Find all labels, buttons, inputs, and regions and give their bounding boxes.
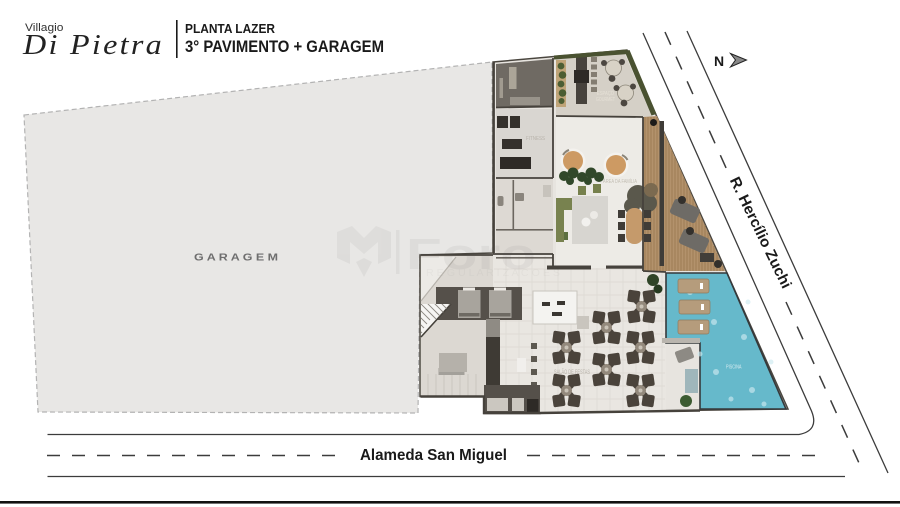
svg-text:Di Pietra: Di Pietra <box>22 30 164 61</box>
svg-text:FITNESS: FITNESS <box>526 136 546 142</box>
svg-text:Alameda San Miguel: Alameda San Miguel <box>360 447 507 464</box>
svg-text:G A R A G E M: G A R A G E M <box>194 252 278 264</box>
svg-text:PISCINA: PISCINA <box>726 365 742 371</box>
svg-text:GOURMET: GOURMET <box>596 97 615 103</box>
svg-text:ÁREA DA FAMÍLIA: ÁREA DA FAMÍLIA <box>603 178 637 185</box>
svg-text:PLANTA LAZER: PLANTA LAZER <box>185 22 275 36</box>
svg-text:N: N <box>714 53 724 69</box>
svg-text:3° PAVIMENTO + GARAGEM: 3° PAVIMENTO + GARAGEM <box>185 37 384 56</box>
svg-text:R E G U L A R I Z A C O E S: R E G U L A R I Z A C O E S <box>426 268 560 279</box>
